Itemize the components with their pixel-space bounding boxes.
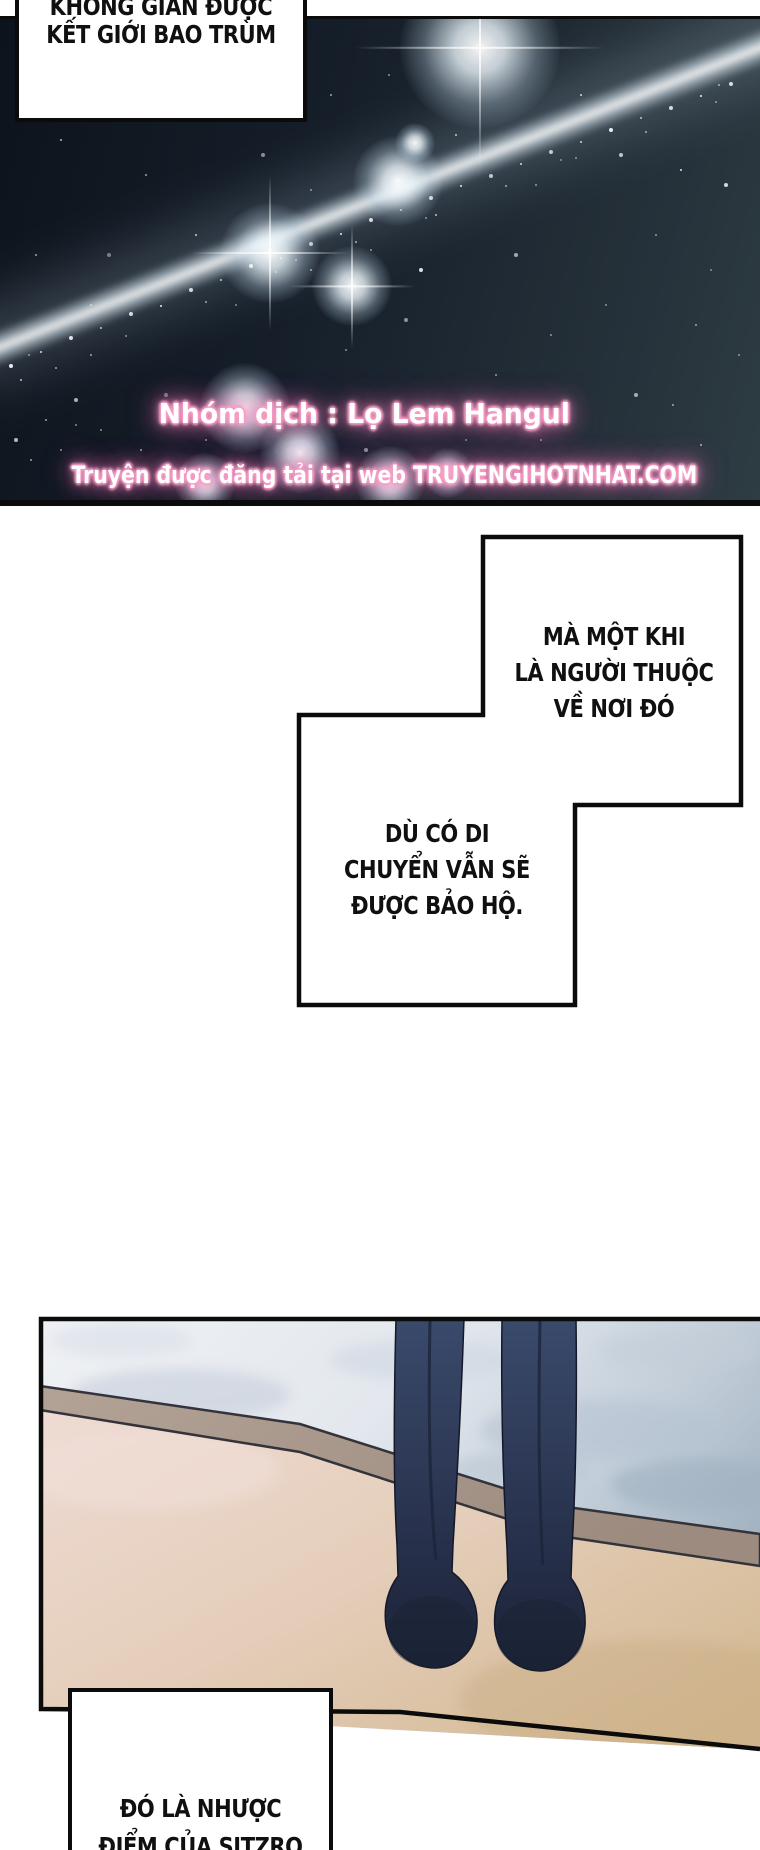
right-boot-shade — [496, 1599, 584, 1671]
speech-text-opening: KHÔNG GIAN ĐƯỢC KẾT GIỚI BAO TRÙM — [19, 0, 303, 49]
speech-bubble-union — [290, 528, 750, 1014]
star-field — [0, 19, 2, 21]
speech-text-belonging: MÀ MỘT KHI LÀ NGƯỜI THUỘC VỀ NƠI ĐÓ — [485, 619, 743, 727]
translator-credit-text: Nhóm dịch : Lọ Lem Hangul — [158, 397, 569, 430]
speech-bubble-weakness: ĐÓ LÀ NHƯỢC ĐIỂM CỦA SITZRO — [68, 1688, 333, 1850]
speech-text-protected: DÙ CÓ DI CHUYỂN VẪN SẼ ĐƯỢC BẢO HỘ. — [297, 816, 577, 924]
left-boot-shade — [388, 1596, 476, 1668]
firework-burst — [312, 246, 392, 326]
website-credit: Truyện được đăng tải tại web TRUYENGIHOT… — [0, 461, 760, 489]
firework-burst — [220, 203, 320, 303]
firework-burst — [395, 123, 435, 163]
comic-page: Nhóm dịch : Lọ Lem Hangul Truyện được đă… — [0, 0, 760, 1850]
translator-credit: Nhóm dịch : Lọ Lem Hangul — [0, 397, 760, 430]
speech-text-weakness: ĐÓ LÀ NHƯỢC ĐIỂM CỦA SITZRO — [72, 1790, 329, 1850]
website-credit-text: Truyện được đăng tải tại web TRUYENGIHOT… — [71, 461, 697, 489]
speech-bubble-opening: KHÔNG GIAN ĐƯỢC KẾT GIỚI BAO TRÙM — [15, 0, 307, 122]
speech-bubble-union-outline — [299, 537, 741, 1005]
